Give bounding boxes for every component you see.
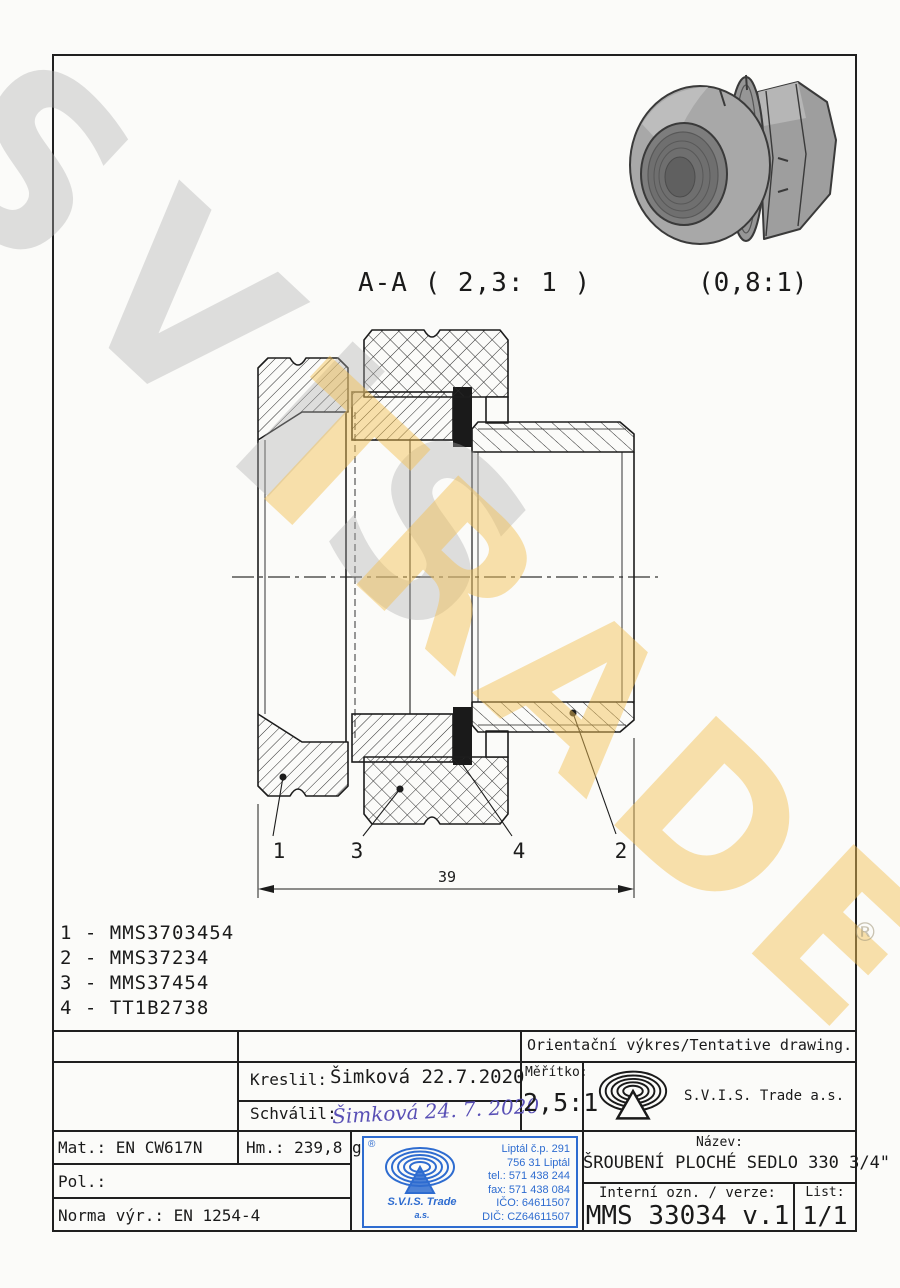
stamp-address-line: 756 31 Liptál (482, 1157, 570, 1171)
part1-bottom-section (258, 714, 348, 796)
part3-bottom-section (364, 757, 508, 824)
stamp-address-line: IČO: 64611507 (482, 1197, 570, 1211)
stamp-company-name: S.V.I.S. Trade (370, 1196, 474, 1208)
parts-list-item: 2 - MMS37234 (60, 946, 234, 971)
parts-list-item: 1 - MMS3703454 (60, 921, 234, 946)
part3-top-section (364, 330, 508, 397)
parts-list-item: 3 - MMS37454 (60, 971, 234, 996)
balloon-4: 4 (513, 839, 526, 863)
photo-scale-caption: (0,8:1) (698, 268, 808, 298)
company-stamp: ® S.V.I.S. Trade a.s. Liptál č.p. 291 75… (362, 1136, 578, 1228)
stamp-address-line: Liptál č.p. 291 (482, 1143, 570, 1157)
parts-list-item: 4 - TT1B2738 (60, 996, 234, 1021)
stamp-company-suffix: a.s. (370, 1210, 474, 1220)
dimension-39: 39 (438, 868, 456, 886)
part-photo (628, 62, 860, 268)
balloon-3: 3 (351, 839, 364, 863)
tailpiece-bottom-section (352, 714, 453, 762)
balloon-2: 2 (615, 839, 628, 863)
stamp-address-line: tel.: 571 438 244 (482, 1170, 570, 1184)
stamp-logo-icon (376, 1143, 464, 1195)
stamp-address-line: DIČ: CZ64611507 (482, 1211, 570, 1225)
drawing-sheet: SVIS TRADE ® (0, 0, 900, 1288)
balloon-1: 1 (273, 839, 286, 863)
part2-bottom-section (472, 702, 634, 732)
parts-list: 1 - MMS3703454 2 - MMS37234 3 - MMS37454… (60, 921, 234, 1021)
section-view-title: A-A ( 2,3: 1 ) (358, 268, 591, 298)
part1-top-section (258, 358, 348, 440)
stamp-address-line: fax: 571 438 084 (482, 1184, 570, 1198)
tailpiece-top-section (352, 392, 453, 440)
stamp-registered-icon: ® (368, 1139, 375, 1150)
stamp-address: Liptál č.p. 291 756 31 Liptál tel.: 571 … (482, 1143, 570, 1224)
part2-top-section (472, 422, 634, 452)
